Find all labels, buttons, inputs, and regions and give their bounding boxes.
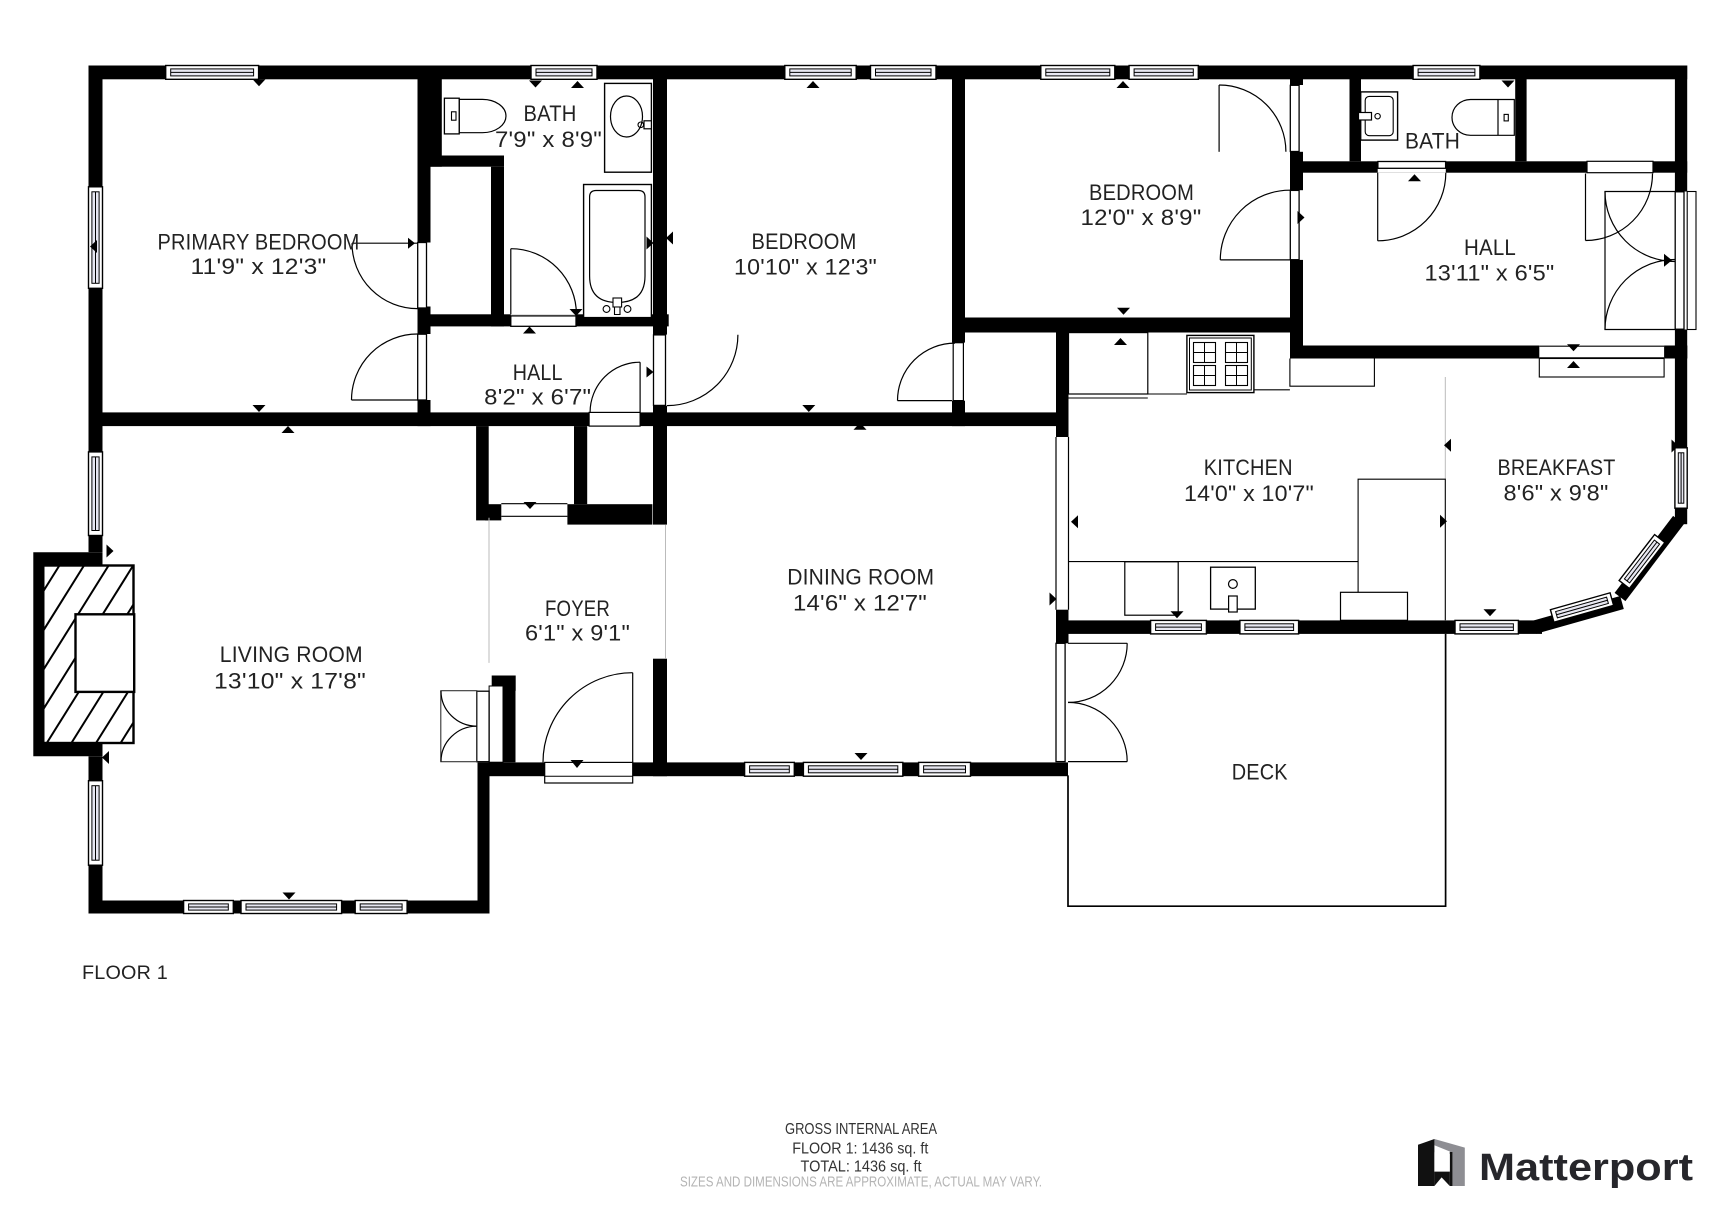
- svg-text:LIVING ROOM: LIVING ROOM: [220, 642, 363, 667]
- svg-text:12'0" x 8'9": 12'0" x 8'9": [1081, 205, 1202, 230]
- svg-text:FLOOR 1: FLOOR 1: [82, 963, 168, 984]
- svg-text:BATH: BATH: [524, 101, 577, 126]
- svg-text:BATH: BATH: [1405, 129, 1460, 154]
- svg-text:13'10" x 17'8": 13'10" x 17'8": [214, 669, 366, 694]
- svg-text:Matterport: Matterport: [1479, 1147, 1693, 1189]
- svg-text:GROSS INTERNAL AREA: GROSS INTERNAL AREA: [785, 1121, 938, 1138]
- svg-text:14'0" x 10'7": 14'0" x 10'7": [1184, 481, 1314, 506]
- svg-text:BREAKFAST: BREAKFAST: [1498, 455, 1616, 480]
- svg-text:SIZES AND DIMENSIONS ARE APPRO: SIZES AND DIMENSIONS ARE APPROXIMATE, AC…: [680, 1175, 1042, 1191]
- svg-text:10'10" x 12'3": 10'10" x 12'3": [734, 255, 877, 280]
- svg-text:8'2" x 6'7": 8'2" x 6'7": [484, 385, 591, 410]
- svg-text:KITCHEN: KITCHEN: [1204, 455, 1293, 480]
- svg-text:DECK: DECK: [1232, 760, 1288, 785]
- svg-text:PRIMARY BEDROOM: PRIMARY BEDROOM: [158, 229, 360, 254]
- svg-text:7'9" x 8'9": 7'9" x 8'9": [495, 127, 602, 152]
- svg-text:HALL: HALL: [1464, 235, 1516, 260]
- svg-text:DINING ROOM: DINING ROOM: [787, 565, 934, 590]
- svg-text:HALL: HALL: [513, 360, 563, 385]
- svg-text:TOTAL: 1436 sq. ft: TOTAL: 1436 sq. ft: [801, 1159, 923, 1176]
- svg-text:6'1" x 9'1": 6'1" x 9'1": [525, 621, 630, 646]
- svg-text:BEDROOM: BEDROOM: [1089, 180, 1194, 205]
- svg-text:8'6" x 9'8": 8'6" x 9'8": [1504, 481, 1609, 506]
- svg-text:13'11" x 6'5": 13'11" x 6'5": [1425, 261, 1555, 286]
- svg-text:BEDROOM: BEDROOM: [752, 229, 857, 254]
- svg-text:FLOOR 1: 1436 sq. ft: FLOOR 1: 1436 sq. ft: [792, 1141, 929, 1158]
- svg-text:11'9" x 12'3": 11'9" x 12'3": [191, 254, 327, 279]
- svg-text:14'6" x 12'7": 14'6" x 12'7": [793, 591, 927, 616]
- svg-text:FOYER: FOYER: [545, 596, 610, 621]
